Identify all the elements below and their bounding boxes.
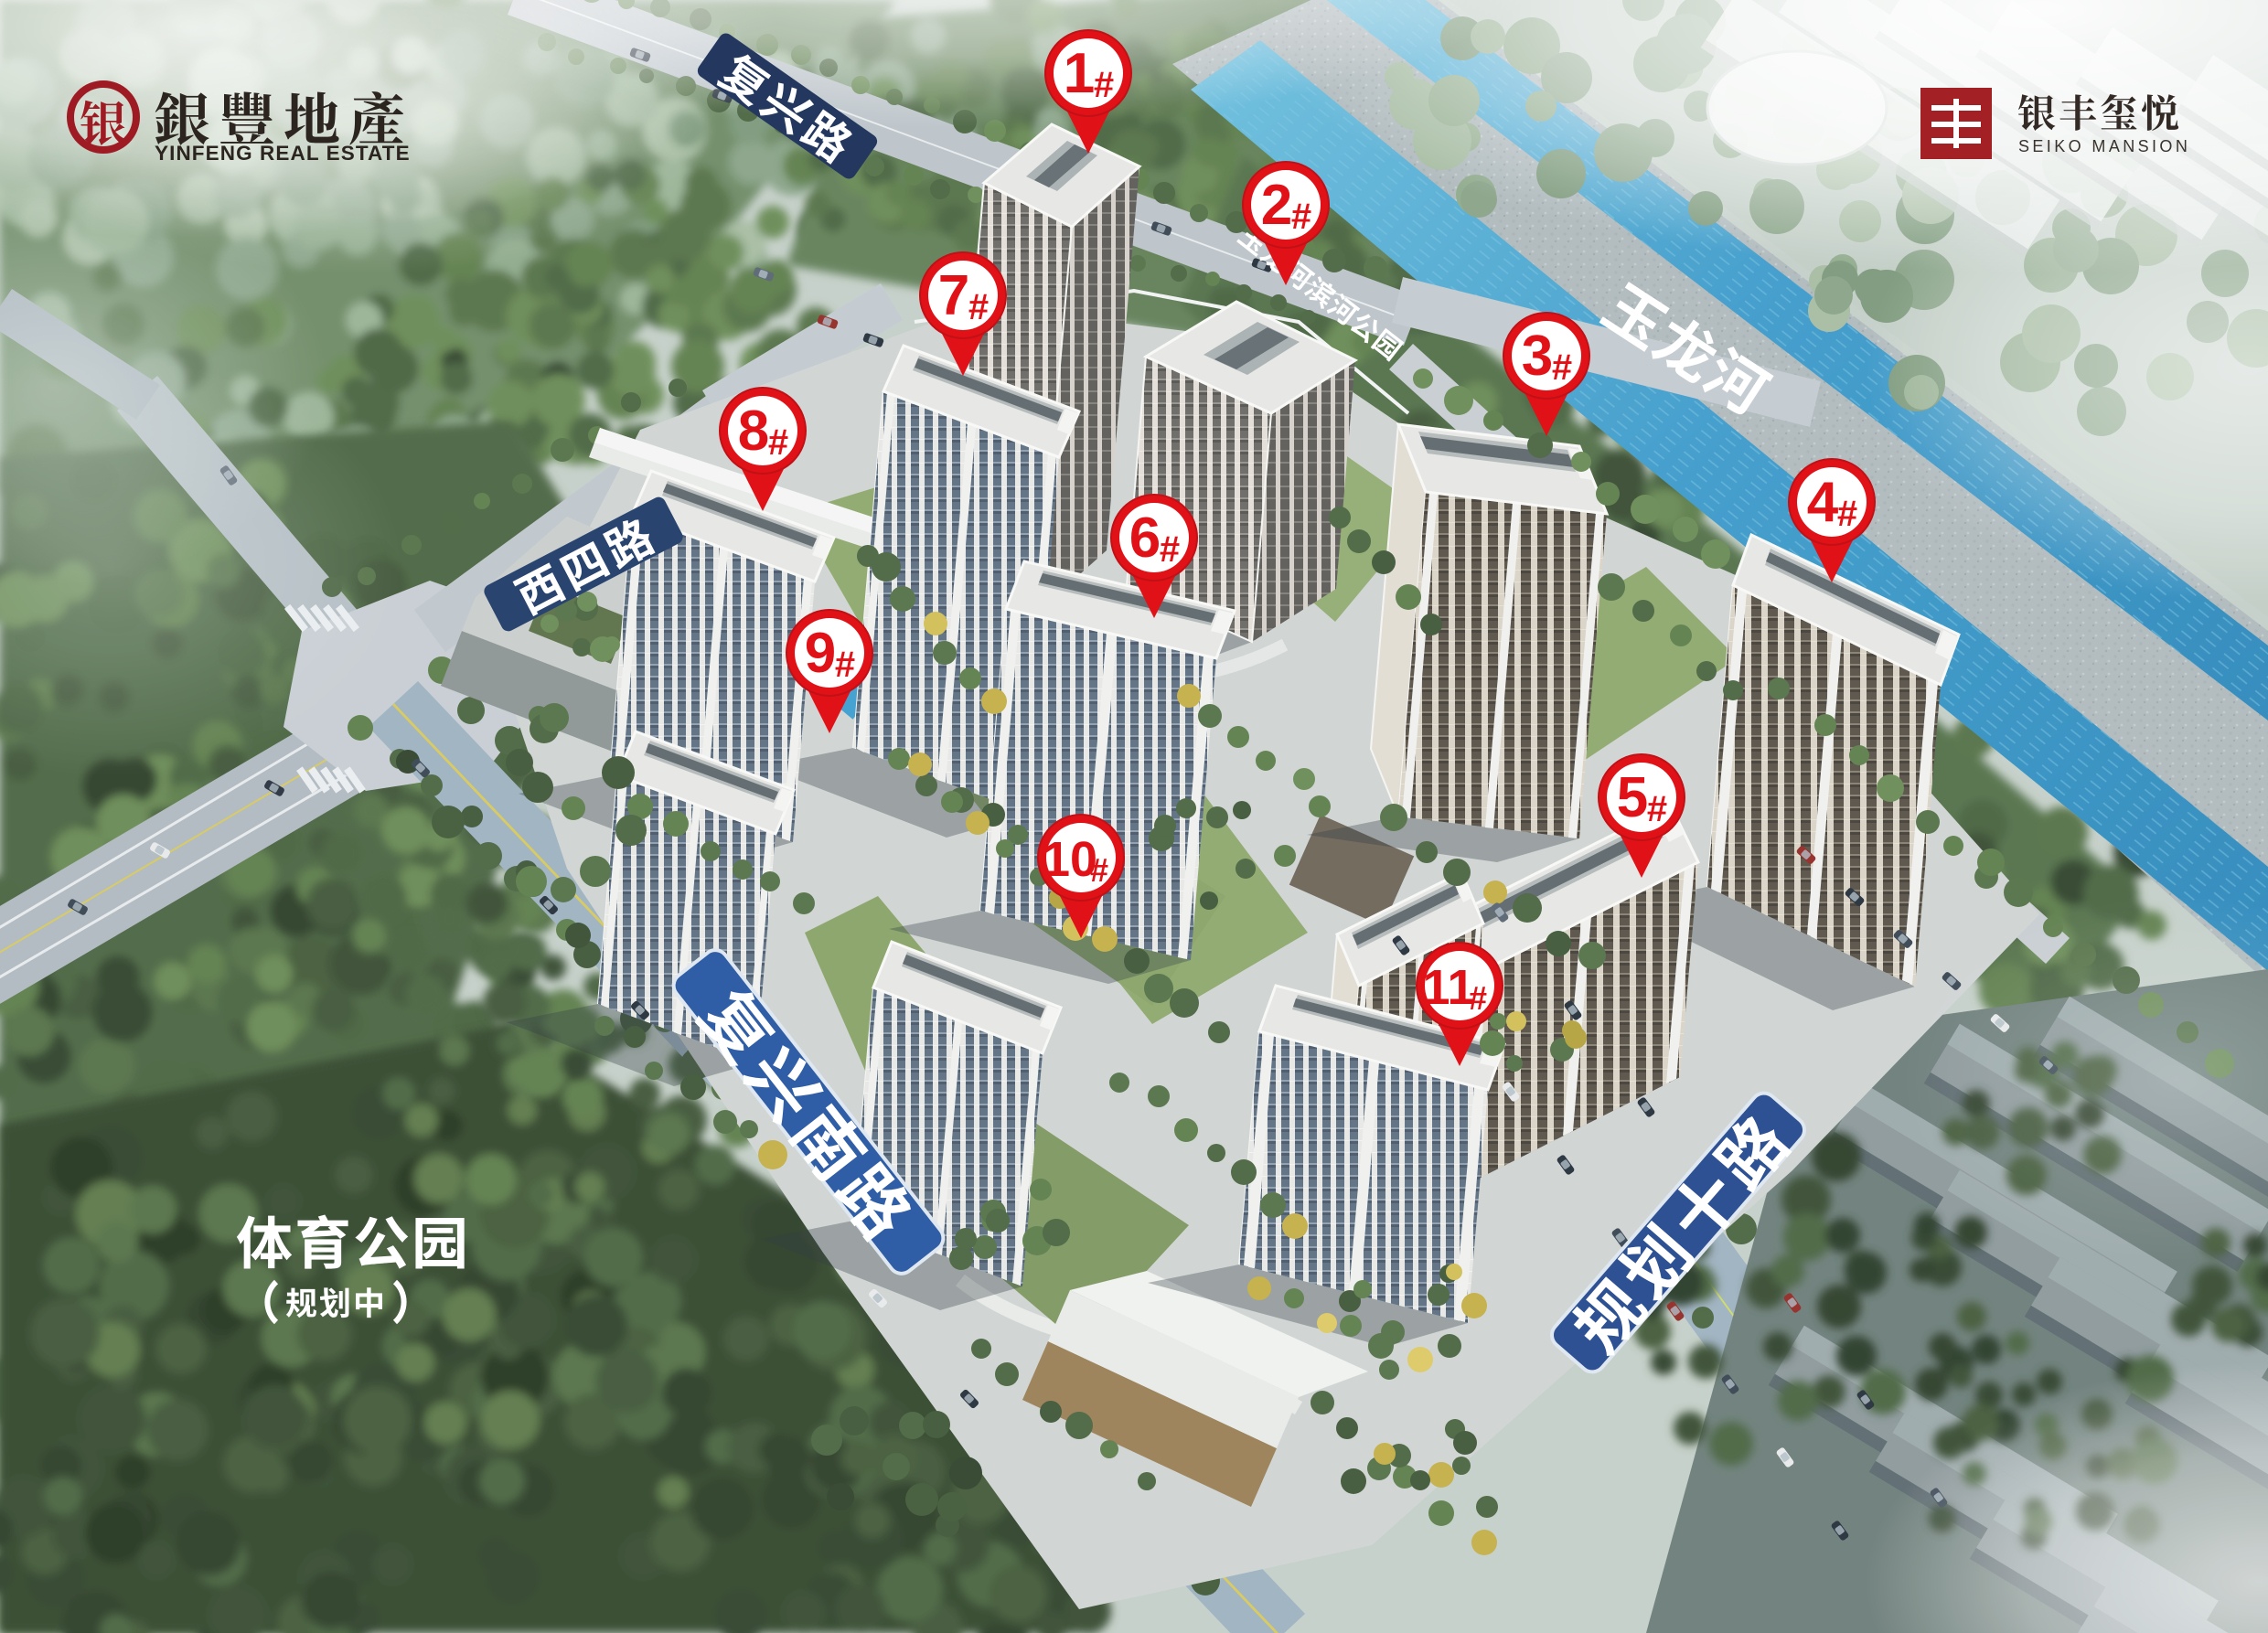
svg-text:#: # (1552, 347, 1572, 388)
svg-text:9: 9 (805, 622, 836, 685)
svg-text:6: 6 (1129, 507, 1161, 570)
svg-text:#: # (1160, 529, 1180, 570)
svg-text:3: 3 (1522, 325, 1553, 388)
svg-text:#: # (1469, 979, 1487, 1017)
svg-text:#: # (968, 287, 989, 327)
svg-text:YINFENG REAL ESTATE: YINFENG REAL ESTATE (155, 142, 411, 165)
svg-text:#: # (1094, 65, 1114, 105)
svg-text:2: 2 (1261, 174, 1292, 237)
svg-text:#: # (1647, 789, 1667, 829)
svg-text:1: 1 (1064, 42, 1095, 105)
svg-text:7: 7 (938, 264, 969, 327)
svg-text:#: # (1090, 851, 1108, 889)
svg-text:4: 4 (1807, 471, 1839, 534)
svg-text:#: # (835, 645, 855, 685)
svg-text:SEIKO MANSION: SEIKO MANSION (2018, 137, 2190, 155)
svg-text:8: 8 (738, 400, 769, 463)
svg-text:5: 5 (1617, 766, 1648, 829)
svg-text:#: # (768, 422, 788, 463)
svg-text:11: 11 (1422, 960, 1474, 1015)
svg-text:#: # (1291, 197, 1311, 237)
svg-text:#: # (1837, 494, 1857, 534)
